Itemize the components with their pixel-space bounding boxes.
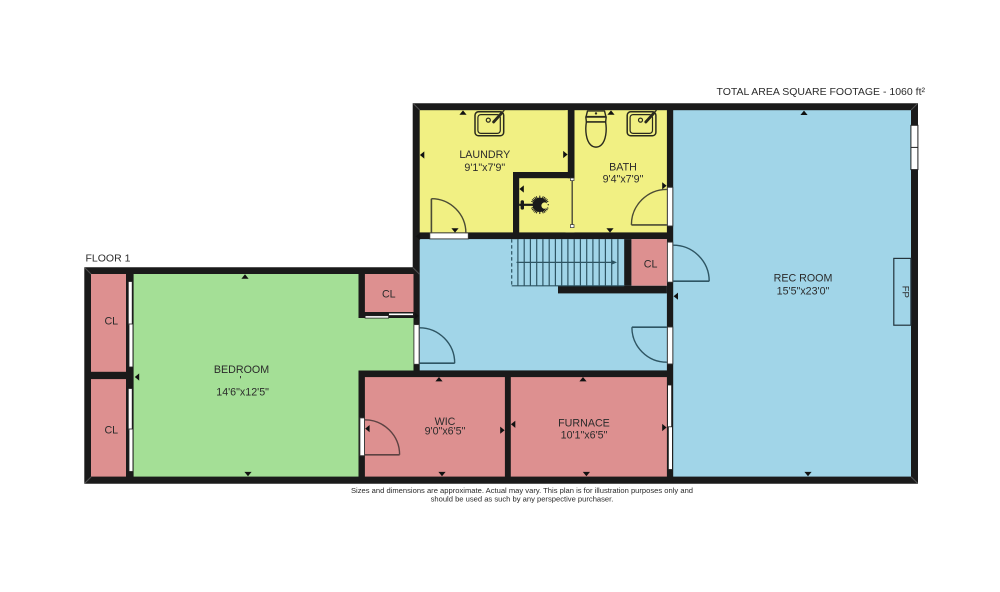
- svg-text:CL: CL: [382, 289, 396, 301]
- svg-text:9'1"x7'9": 9'1"x7'9": [464, 162, 505, 174]
- svg-text:should be used as such by any: should be used as such by any perspectiv…: [431, 495, 614, 504]
- svg-text:Sizes and dimensions are appro: Sizes and dimensions are approximate. Ac…: [351, 486, 693, 495]
- svg-text:14'6"x12'5": 14'6"x12'5": [216, 387, 269, 399]
- svg-text:9'0"x6'5": 9'0"x6'5": [425, 426, 466, 438]
- svg-text:BATH: BATH: [609, 162, 637, 174]
- svg-text:FP: FP: [899, 286, 910, 298]
- svg-text:FLOOR 1: FLOOR 1: [86, 253, 131, 265]
- svg-text:15'5"x23'0": 15'5"x23'0": [777, 285, 830, 297]
- svg-text:CL: CL: [104, 316, 118, 328]
- svg-text:BEDROOM: BEDROOM: [214, 364, 269, 376]
- svg-text:CL: CL: [104, 425, 118, 437]
- svg-text:9'4"x7'9": 9'4"x7'9": [603, 174, 644, 186]
- svg-text:TOTAL AREA SQUARE FOOTAGE - 10: TOTAL AREA SQUARE FOOTAGE - 1060 ft²: [716, 86, 925, 98]
- svg-text:REC ROOM: REC ROOM: [774, 273, 833, 285]
- svg-text:FURNACE: FURNACE: [558, 417, 610, 429]
- svg-text:LAUNDRY: LAUNDRY: [459, 149, 510, 161]
- svg-text:10'1"x6'5": 10'1"x6'5": [561, 429, 608, 441]
- svg-text:': ': [239, 375, 241, 387]
- svg-text:CL: CL: [644, 259, 658, 271]
